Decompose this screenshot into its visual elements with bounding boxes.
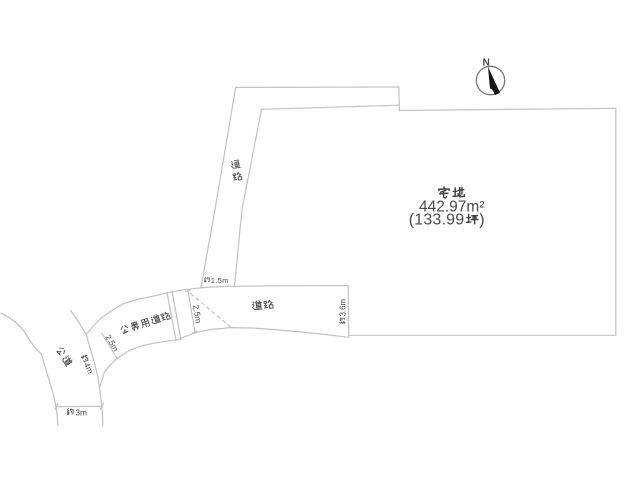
svg-text:3.6m: 3.6m — [339, 299, 348, 316]
svg-text:2.5m: 2.5m — [103, 333, 120, 353]
svg-text:4m: 4m — [82, 361, 95, 375]
svg-text:3m: 3m — [75, 407, 87, 417]
svg-text:(133.99: (133.99 — [409, 212, 465, 229]
svg-text:1.5m: 1.5m — [211, 276, 229, 285]
svg-text:): ) — [479, 212, 484, 229]
svg-text:N: N — [483, 58, 490, 69]
